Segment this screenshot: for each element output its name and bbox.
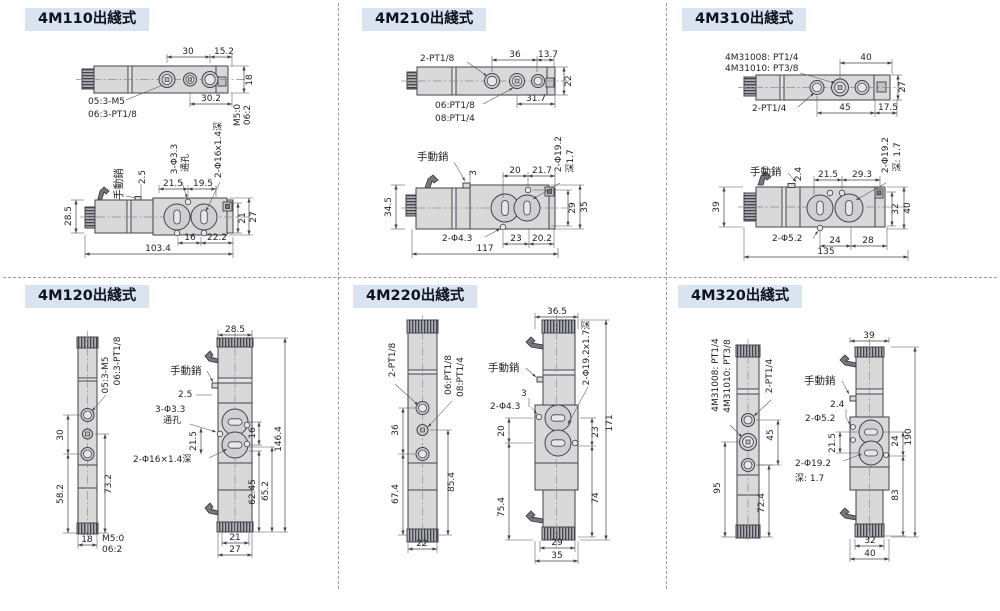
front-view-dimensions: 手動銷 2.5 3-Φ3.3 通孔 2-Φ16x1.4深 21.5 19.5 2… [64, 122, 259, 258]
note-06: 06:2 [102, 545, 122, 555]
spade-terminal-top [526, 337, 543, 349]
dim-45: 45 [766, 429, 776, 440]
dim-40: 40 [903, 202, 913, 214]
dim-2-5: 2.5 [178, 390, 192, 400]
spade-terminal-bottom [205, 503, 218, 515]
dim-27: 27 [229, 545, 240, 555]
top-view-outline [401, 67, 569, 95]
dim-65-2: 65.2 [261, 481, 271, 501]
label-08-PT14: 08:PT1/4 [456, 357, 466, 397]
dim-28-5: 28.5 [64, 206, 74, 226]
dim-16: 16 [184, 233, 196, 243]
dim-20: 20 [509, 166, 521, 176]
dim-21-5: 21.5 [828, 433, 838, 453]
dim-24: 24 [829, 236, 841, 246]
front-view-outline [738, 172, 908, 231]
front-view-outline [205, 331, 253, 542]
panel-4M110: 4M110出綫式 30 15.2 [0, 0, 333, 277]
dim-2-5: 2.5 [138, 170, 148, 184]
dim-74: 74 [591, 492, 601, 504]
dim-67-4: 67.4 [391, 484, 401, 504]
label-05-3-M5: 05:3-M5 [101, 357, 111, 394]
label-2-PT14: 2-PT1/4 [752, 104, 787, 114]
dim-29: 29 [568, 202, 578, 214]
dim-13-7: 13.7 [538, 50, 558, 60]
label-manual-pin: 手動銷 [170, 364, 202, 377]
dim-20-2: 20.2 [532, 234, 552, 244]
dim-23: 23 [591, 426, 601, 437]
dim-3: 3 [521, 389, 527, 399]
label-recess: 2-Φ16x1.4深 [213, 122, 224, 178]
dim-40: 40 [864, 549, 876, 559]
label-manual-pin: 手動銷 [750, 165, 782, 178]
dim-17-5: 17.5 [878, 103, 898, 113]
label-manual-pin: 手動銷 [417, 150, 449, 163]
drawing-4M120: 05:3-M5 06:3-PT1/8 30 58.2 73.2 18 M5:0 … [0, 277, 333, 611]
top-view-outline [76, 66, 250, 93]
dim-30: 30 [56, 429, 66, 441]
dim-21: 21 [238, 212, 248, 223]
dim-36-5: 36.5 [547, 307, 567, 317]
manual-pin [463, 183, 470, 188]
dim-18: 18 [81, 535, 93, 545]
dim-22: 22 [564, 75, 574, 86]
dim-32: 32 [864, 536, 875, 546]
dim-24: 24 [891, 435, 901, 447]
panel-4M220: 4M220出綫式 2-PT1/8 06:PT1/8 08:PT1/4 [337, 277, 666, 611]
drawing-4M210: 2-PT1/8 36 13.7 22 31.7 06:PT1/8 08:PT1/… [337, 0, 666, 277]
label-06-PT18: 06:PT1/8 [444, 355, 454, 395]
front-view-outline [401, 175, 577, 230]
catalog-page: 4M110出綫式 30 15.2 [0, 0, 1000, 611]
label-manual-pin: 手動銷 [488, 361, 520, 374]
spade-terminal [98, 187, 109, 199]
label-recess-2: 深: 1.7 [892, 142, 903, 171]
dim-27: 27 [898, 81, 908, 92]
dim-28: 28 [862, 236, 874, 246]
dim-35: 35 [551, 551, 562, 561]
panel-4M210: 4M210出綫式 2-PT1/8 36 13.7 [337, 0, 666, 277]
dim-135: 135 [817, 247, 834, 257]
dim-27: 27 [249, 211, 259, 222]
dim-30: 30 [182, 47, 194, 57]
label-06-PT18: 06:PT1/8 [435, 101, 475, 111]
dim-36: 36 [391, 424, 401, 436]
dim-22: 22 [416, 539, 427, 549]
side-view-outline [77, 331, 98, 542]
dim-20: 20 [497, 425, 507, 437]
label-4M31008: 4M31008: PT1/4 [725, 53, 799, 63]
label-2-PT14: 2-PT1/4 [765, 359, 775, 394]
label-3-holes: 3-Φ3.3 [155, 405, 185, 415]
drawing-4M110: 30 15.2 18 30.2 M5:0 06:2 05:3-M5 06:3-P… [0, 0, 333, 277]
drawing-4M320: 4M31008: PT1/4 4M31010: PT3/8 2-PT1/4 45… [668, 277, 1000, 611]
manual-pin [788, 184, 795, 188]
dim-36: 36 [509, 50, 521, 60]
dim-2-4: 2.4 [830, 400, 845, 410]
panel-4M310: 4M310出綫式 4M31008: PT1/4 4M31010: PT3/8 [668, 0, 1000, 277]
dim-31-7: 31.7 [526, 94, 546, 104]
dim-29: 29 [551, 538, 563, 548]
divider-vertical-2 [666, 3, 667, 589]
dim-23: 23 [510, 234, 521, 244]
manual-pin [212, 383, 218, 388]
label-2-PT18: 2-PT1/8 [420, 54, 455, 64]
spade-terminal-bottom [840, 508, 856, 520]
dim-18: 18 [245, 74, 255, 86]
dim-3: 3 [469, 170, 479, 176]
dim-2-4: 2.4 [794, 167, 804, 182]
dim-21-5: 21.5 [163, 179, 183, 189]
label-recess: 2-Φ16×1.4深 [133, 454, 191, 465]
label-hole: 2-Φ4.3 [490, 402, 520, 412]
dim-171: 171 [605, 414, 615, 431]
dim-32: 32 [891, 203, 901, 214]
dim-35: 35 [580, 201, 590, 212]
dim-19-5: 19.5 [193, 179, 213, 189]
panel-4M120: 4M120出綫式 05:3-M5 06:3-PT1/8 [0, 277, 333, 611]
dim-40: 40 [860, 53, 872, 63]
dim-95: 95 [713, 482, 723, 493]
panel-4M320: 4M320出綫式 4M31008: PT1/4 4M31010: PT3/8 2… [668, 277, 1000, 611]
label-recess: 2-Φ19.2x1.7深 [581, 321, 592, 386]
front-view-outline [526, 315, 578, 547]
label-08-PT14: 08:PT1/4 [435, 114, 475, 124]
label-hole: 2-Φ5.2 [772, 234, 802, 244]
dim-146-4: 146.4 [274, 426, 284, 452]
dim-21-5: 21.5 [189, 431, 199, 451]
label-hole: 2-Φ5.2 [805, 414, 835, 424]
label-thru-hole: 通孔 [180, 154, 191, 172]
drawing-4M220: 2-PT1/8 06:PT1/8 08:PT1/4 36 67.4 85.4 2… [337, 277, 666, 611]
note-m5: M5:0 [102, 534, 125, 544]
dim-21-7: 21.7 [532, 166, 552, 176]
dim-103-4: 103.4 [145, 244, 171, 254]
dim-83: 83 [891, 489, 901, 500]
spade-terminal-top [840, 355, 856, 367]
dim-29-3: 29.3 [852, 170, 872, 180]
dim-30-2: 30.2 [201, 94, 221, 104]
label-recess-2: 深1.7 [565, 149, 576, 172]
front-view-outline [80, 187, 250, 236]
dim-16: 16 [248, 427, 258, 439]
label-4M31008: 4M31008: PT1/4 [711, 338, 721, 412]
dim-28-5: 28.5 [225, 325, 245, 335]
dim-39: 39 [863, 331, 875, 341]
label-3-holes: 3-Φ3.3 [170, 144, 180, 174]
label-recess-2: 深: 1.7 [795, 473, 824, 484]
label-recess-1: 2-Φ19.2 [554, 136, 564, 172]
front-view-outline [840, 339, 889, 543]
drawing-4M310: 4M31008: PT1/4 4M31010: PT3/8 40 27 2-PT… [668, 0, 1000, 277]
label-05-3-M5: 05:3-M5 [88, 97, 125, 107]
dim-190: 190 [904, 428, 914, 445]
dim-117: 117 [476, 244, 493, 254]
label-recess-1: 2-Φ19.2 [795, 459, 831, 469]
label-hole: 2-Φ4.3 [442, 234, 472, 244]
note-06: 06:2 [243, 105, 253, 125]
manual-pin [850, 396, 856, 401]
label-06-3-PT18: 06:3-PT1/8 [88, 110, 137, 120]
spade-terminal-bottom [526, 511, 543, 523]
label-2-PT18: 2-PT1/8 [388, 343, 398, 378]
spade-terminal [425, 175, 438, 188]
manual-pin [537, 377, 543, 382]
label-thru-hole: 通孔 [163, 415, 181, 426]
dim-73-2: 73.2 [104, 474, 114, 494]
dim-75-4: 75.4 [497, 497, 507, 517]
dim-58-2: 58.2 [56, 484, 66, 504]
dim-72-4: 72.4 [757, 493, 767, 513]
side-view-outline [407, 315, 438, 547]
label-4M31010: 4M31010: PT3/8 [725, 64, 799, 74]
label-4M31010: 4M31010: PT3/8 [723, 339, 733, 413]
dim-39: 39 [712, 201, 722, 213]
dim-21-5: 21.5 [818, 170, 838, 180]
dim-21: 21 [229, 533, 240, 543]
dim-15-2: 15.2 [214, 47, 234, 57]
label-06-3-PT18: 06:3-PT1/8 [113, 336, 123, 385]
label-manual-pin: 手動銷 [112, 168, 125, 200]
dim-85-4: 85.4 [447, 472, 457, 492]
spade-terminal-top [205, 351, 218, 363]
dim-22-2: 22.2 [207, 233, 227, 243]
dim-62-45: 62.45 [248, 479, 258, 505]
dim-45: 45 [839, 103, 850, 113]
label-recess-1: 2-Φ19.2 [881, 137, 891, 173]
label-manual-pin: 手動銷 [804, 374, 836, 387]
note-m5: M5:0 [233, 104, 243, 127]
dim-34-5: 34.5 [384, 197, 394, 217]
